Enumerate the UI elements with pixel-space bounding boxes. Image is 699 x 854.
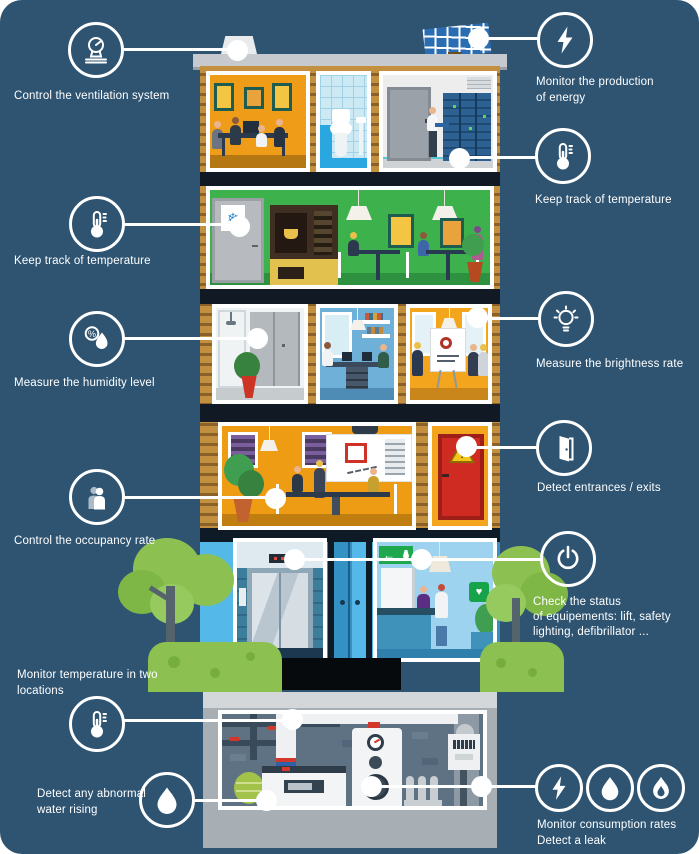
elevator-call-panel [239,588,246,606]
brick [422,758,438,765]
person [478,344,489,376]
chart-pie [440,337,452,349]
plant-leaves [462,234,484,256]
framed-picture [214,83,234,111]
callout-label-humidity: Measure the humidity level [14,375,155,391]
books [367,327,383,334]
bush-dot [210,668,220,678]
receptionist [417,586,430,610]
label-line: Monitor consumption rates [537,817,676,833]
vending-rows [314,211,332,255]
meter-pole [460,770,467,806]
desk-leg [222,138,225,156]
dispenser-slot [278,267,304,279]
lightning-icon [537,12,593,68]
chair [394,484,397,514]
connector-line [124,337,258,340]
bush-dot [528,668,537,677]
callout-label-equipment: Check the statusof equipements: lift, sa… [533,595,671,640]
room-floor [320,158,367,168]
connector-dot [282,709,303,730]
floor-pipe-base [404,800,442,806]
pendant-lamp [260,440,278,451]
heater-port [369,756,382,769]
lamp-cord [357,308,358,320]
boiler-slot-inner [288,783,312,790]
monitor [342,352,352,361]
connector-line [371,785,536,788]
chart-line [437,360,455,362]
room-floor [320,388,394,400]
pendant-lamp [441,318,457,328]
person [322,342,333,366]
pipe-valve [230,737,239,741]
server-led [453,105,456,108]
locker-handle [282,344,285,347]
person [412,342,423,376]
brick [412,732,428,739]
door-handle [252,245,258,247]
elevator-display-led [274,557,277,560]
callout-label-two-locations: Monitor temperature in twolocations [17,667,158,699]
label-line: of equipements: lift, safety [533,610,671,625]
floor-divider [200,172,500,186]
label-line: Monitor temperature in two [17,667,158,683]
heater-cap [368,722,380,728]
visitor [435,584,448,618]
defib-heart-glyph: ♥ [476,586,483,598]
chart-line [437,355,459,357]
label-line: Detect any abnormal [37,786,146,802]
elevator-side-panel [237,568,247,652]
power-icon [540,531,596,587]
sink-pedestal [359,123,363,155]
person [427,107,438,131]
lamp-cord [449,308,450,318]
person [368,468,379,494]
connector-dot [471,776,492,797]
table-stem [376,254,380,280]
connector-dot [227,40,248,61]
door-handle [442,474,449,477]
thermometer-icon [69,696,125,752]
connector-dot [265,488,286,509]
exit-sign: ← [379,546,413,564]
connector-line [122,48,237,51]
lamp-cord [439,542,440,558]
connector-dot [256,790,277,811]
room-cafeteria: ❄ [206,186,494,289]
room-floor [210,155,306,168]
server-rack-divider [475,93,477,161]
monitor [362,352,372,361]
lamp-cord [358,190,359,206]
callout-label-energy: Monitor the productionof energy [536,74,654,106]
plant-leaves [238,470,264,498]
connector-dot [284,549,305,570]
toilet-base [335,133,347,157]
bush-dot [168,656,180,668]
label-line: Monitor the production [536,74,654,90]
table-stem [446,254,450,280]
label-line: Detect entrances / exits [537,480,661,496]
drawer-unit [346,367,368,389]
lightning-icon [535,764,583,812]
framed-picture [244,87,264,109]
lamp-cord [444,190,445,206]
connector-line [124,223,240,226]
meter-slot [455,754,473,760]
projector [352,426,378,434]
flipchart [430,328,466,372]
water-drop-icon [139,772,195,828]
plant-leaves [234,352,260,380]
pendant-lamp [346,206,372,220]
bush [148,642,282,692]
glass-door-handle [355,600,360,605]
boiler-valve [282,767,290,771]
callout-label-brightness: Measure the brightness rate [536,356,683,372]
connector-dot [361,776,382,797]
callout-label-temp-kitchen: Keep track of temperature [14,253,151,269]
reception-floor [377,649,493,658]
label-line: Keep track of temperature [14,253,151,269]
label-line: of energy [536,90,654,106]
connector-line [124,496,276,499]
flame-icon [637,764,685,812]
visitor-legs [436,626,447,646]
label-line: Measure the humidity level [14,375,155,391]
bookshelf [362,334,390,338]
meter-display [453,740,475,749]
elevator-side-panel [313,568,323,652]
door [387,87,431,161]
bush [480,642,564,692]
books [365,313,383,320]
brick [230,754,246,761]
room-floor [216,388,304,400]
callout-label-water: Detect any abnormalwater rising [37,786,146,818]
diagram-red-square [345,443,367,463]
coffee-machine [270,205,338,285]
bush-dot [496,658,506,668]
ventilation-gauge-icon [68,22,124,78]
connector-line [459,156,536,159]
person [230,117,241,145]
room-office-top [206,71,310,172]
person [378,344,389,368]
people-icon [69,469,125,525]
bookshelf [362,320,390,324]
framed-picture [272,83,292,111]
person [256,125,267,147]
vent-grille [467,77,491,89]
connector-dot [467,307,488,328]
coffee-cup [284,229,298,239]
flipchart-leg [452,370,457,388]
label-line: water rising [37,802,146,818]
server-led [483,115,486,118]
floor-divider [200,289,500,304]
room-reception: ← ♥ [373,538,497,662]
elevator-door-gap [279,573,281,652]
connector-dot [449,148,470,169]
boiler-header [262,766,346,773]
water-drop-icon [586,764,634,812]
tree-canopy [486,584,526,622]
thermometer-icon [535,128,591,184]
framed-picture [388,214,414,248]
room-floor [410,388,488,400]
tank-line [236,790,262,792]
person [274,119,285,147]
thermometer-icon [69,196,125,252]
flipchart-leg [436,370,441,388]
room-office-blue [316,304,398,404]
laptop [435,123,449,127]
light-bulb-icon [538,291,594,347]
percent-glyph: % [88,329,96,339]
shower-head [226,321,236,325]
callout-label-occupancy: Control the occupancy rate [14,533,155,549]
entrance-mat [263,658,401,690]
cold-room-door: ❄ [212,198,264,283]
connector-dot [247,328,268,349]
callout-label-consumption: Monitor consumption ratesDetect a leak [537,817,676,849]
framed-picture [440,218,464,248]
connector-line [124,719,292,722]
infographic-smart-building: ❄ [0,0,699,854]
callout-label-temp-top: Keep track of temperature [535,192,672,208]
chair [406,252,409,278]
glass-door-handle [340,600,345,605]
tank-line [236,782,262,784]
label-line: Detect a leak [537,833,676,849]
lamp-cord [269,426,270,440]
floor-divider [200,404,500,422]
humidity-percent-drop-icon: % [69,311,125,367]
person [292,466,303,492]
label-line: Check the status [533,595,671,610]
connector-dot [411,549,432,570]
bush-dot [246,652,255,661]
connector-dot [468,28,489,49]
label-line: Control the occupancy rate [14,533,155,549]
room-meeting [218,422,416,530]
connector-dot [456,436,477,457]
background-panel: ❄ [0,0,699,854]
utility-meter [448,734,480,770]
callout-label-ventilation: Control the ventilation system [14,88,169,104]
room-shower-lockers [212,304,308,404]
room-restroom [316,71,371,172]
open-door-icon [536,420,592,476]
label-line: Keep track of temperature [535,192,672,208]
table-pedestal [332,497,340,515]
reception-counter [377,608,435,615]
connector-dot [229,216,250,237]
reception-counter-front [377,615,431,649]
label-line: Control the ventilation system [14,88,169,104]
server-led [469,127,472,130]
person-legs [429,131,437,157]
label-line: lighting, defibrillator ... [533,625,671,640]
label-line: Measure the brightness rate [536,356,683,372]
callout-label-entrances: Detect entrances / exits [537,480,661,496]
label-line: locations [17,683,158,699]
room-floor [222,514,412,526]
basement-wall-top [203,692,497,708]
chair [338,252,341,278]
diagram-panel [385,439,405,475]
lockers [250,312,300,386]
